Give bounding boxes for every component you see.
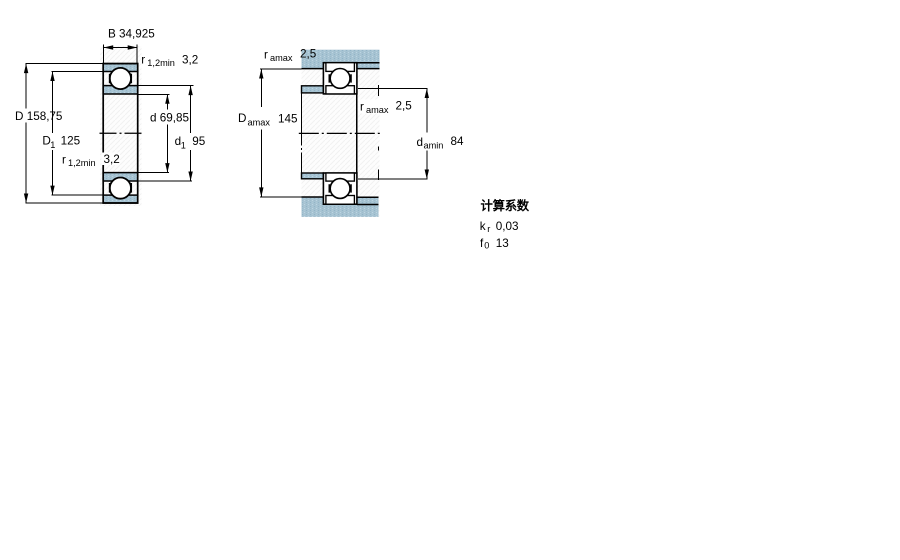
svg-text:1,2min: 1,2min <box>68 158 96 168</box>
svg-text:r: r <box>141 54 145 67</box>
svg-text:amax: amax <box>248 118 271 128</box>
svg-text:r: r <box>62 153 66 166</box>
svg-text:r: r <box>264 48 268 61</box>
svg-text:2,5: 2,5 <box>300 48 317 61</box>
svg-text:计算系数: 计算系数 <box>481 198 530 213</box>
svg-text:1,2min: 1,2min <box>147 58 175 68</box>
svg-text:d: d <box>417 136 424 149</box>
svg-text:1: 1 <box>50 140 55 150</box>
svg-text:95: 95 <box>192 135 206 148</box>
svg-text:d 69,85: d 69,85 <box>150 111 189 124</box>
svg-text:amax: amax <box>366 105 389 115</box>
svg-text:3,2: 3,2 <box>182 53 198 66</box>
svg-text:r: r <box>487 224 490 234</box>
svg-text:amax: amax <box>270 53 293 63</box>
svg-text:r: r <box>360 101 364 114</box>
svg-text:13: 13 <box>496 237 509 250</box>
svg-text:84: 84 <box>451 135 465 148</box>
svg-text:amin: amin <box>424 141 444 151</box>
svg-text:0: 0 <box>484 240 489 250</box>
svg-text:125: 125 <box>61 134 81 147</box>
svg-text:145: 145 <box>278 113 298 126</box>
svg-text:2,5: 2,5 <box>396 100 413 113</box>
svg-text:k: k <box>480 220 486 233</box>
svg-text:D: D <box>238 112 246 125</box>
svg-text:B 34,925: B 34,925 <box>108 28 155 41</box>
svg-text:0,03: 0,03 <box>496 220 519 233</box>
svg-text:3,2: 3,2 <box>104 153 120 166</box>
svg-text:D 158,75: D 158,75 <box>15 110 63 123</box>
svg-text:1: 1 <box>181 140 186 150</box>
